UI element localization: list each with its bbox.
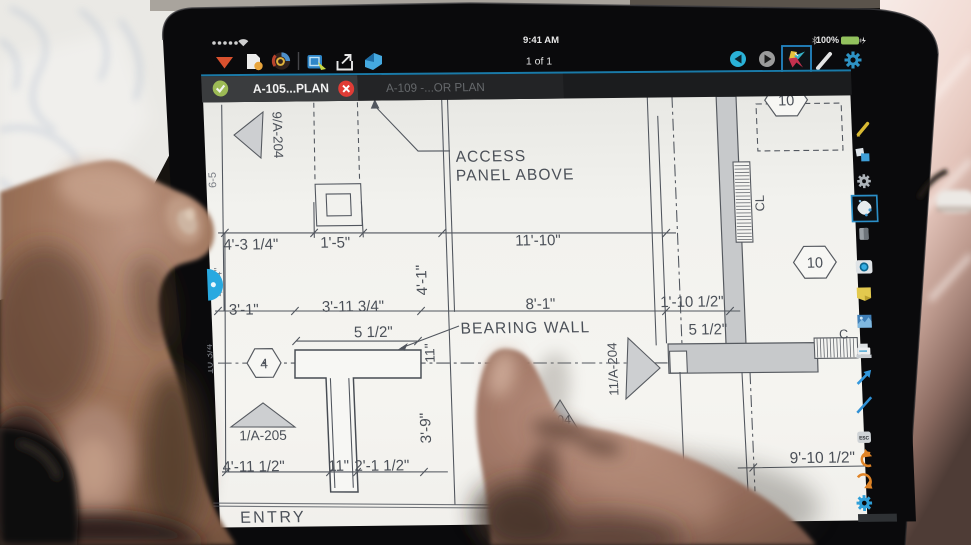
svg-text:9/A-204: 9/A-204 [269,111,286,158]
svg-text:1'-10 1/2": 1'-10 1/2" [660,293,724,311]
svg-text:4'-11 1/2": 4'-11 1/2" [222,458,285,476]
svg-text:6-5: 6-5 [207,172,219,188]
svg-text:ACCESS: ACCESS [455,148,526,166]
svg-text:11/A-204: 11/A-204 [604,342,621,396]
svg-text:11'-10": 11'-10" [515,232,561,250]
svg-text:5 1/2": 5 1/2" [354,324,393,342]
svg-text:10: 10 [807,255,824,271]
svg-text:9'-10 1/2": 9'-10 1/2" [789,449,855,467]
svg-text:1 of 1: 1 of 1 [526,56,552,68]
svg-text:A-105...PLAN: A-105...PLAN [253,81,330,96]
svg-text:100%: 100% [816,35,839,45]
svg-text:5 1/2": 5 1/2" [688,321,727,339]
svg-text:ESC: ESC [859,435,870,441]
svg-text:2'-1 1/2": 2'-1 1/2" [354,457,410,475]
svg-text:BEARING WALL: BEARING WALL [460,319,590,338]
svg-text:CL: CL [752,195,767,212]
svg-text:C: C [839,326,849,341]
svg-text:3'-1": 3'-1" [229,301,260,319]
svg-text:PANEL ABOVE: PANEL ABOVE [456,166,575,184]
svg-text:A-109 -...OR PLAN: A-109 -...OR PLAN [386,81,485,95]
svg-text:3'-11 3/4": 3'-11 3/4" [322,298,385,316]
svg-text:3'-9": 3'-9" [417,413,435,444]
svg-text:4'-3 1/4": 4'-3 1/4" [223,236,279,254]
svg-text:8'-1": 8'-1" [525,296,556,314]
svg-text:9:41 AM: 9:41 AM [523,35,559,46]
svg-text:11": 11" [328,458,350,475]
svg-text:1/A-205: 1/A-205 [239,428,287,444]
svg-text:ENTRY: ENTRY [240,508,307,527]
svg-text:11": 11" [422,343,438,363]
svg-text:4'-1": 4'-1" [413,265,431,296]
svg-text:1'-5": 1'-5" [320,234,351,252]
